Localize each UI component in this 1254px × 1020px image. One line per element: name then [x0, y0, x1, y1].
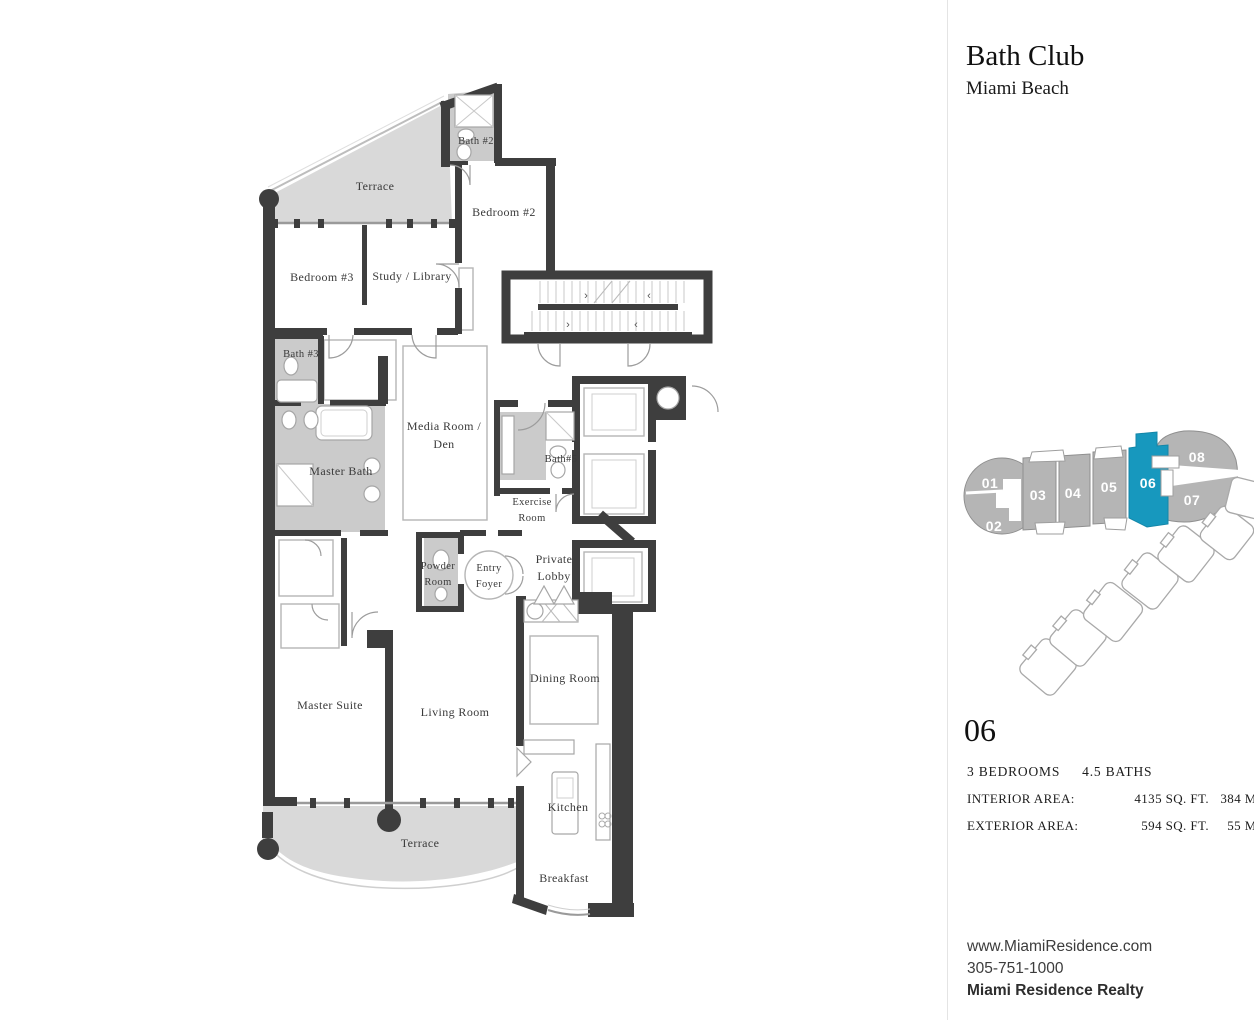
interior-area-row: INTERIOR AREA: 4135 SQ. FT. 384 M² — [967, 791, 1254, 807]
svg-text:Room: Room — [518, 513, 545, 524]
column — [377, 808, 401, 832]
elevator-shaft — [584, 454, 644, 514]
label-powder: Powder — [421, 561, 456, 572]
label-bath5: Bath#5 — [545, 454, 578, 465]
website-link[interactable]: www.MiamiResidence.com — [967, 936, 1152, 958]
label-dining-room: Dining Room — [530, 671, 600, 685]
label-master-bath: Master Bath — [309, 464, 372, 478]
panel-divider — [947, 0, 948, 1020]
label-bedroom2: Bedroom #2 — [472, 205, 536, 219]
label-breakfast: Breakfast — [539, 871, 589, 885]
label-terrace-bottom: Terrace — [401, 836, 440, 850]
terrace-top — [268, 96, 452, 224]
svg-text:Den: Den — [433, 437, 454, 451]
lobby-door — [554, 586, 574, 604]
stair-core: › ‹ › ‹ — [506, 275, 708, 339]
label-bath2: Bath #2 — [458, 136, 494, 147]
keyplan-label-01: 01 — [982, 475, 999, 491]
label-study: Study / Library — [372, 269, 451, 283]
phone-number: 305-751-1000 — [967, 958, 1152, 980]
label-entry-foyer: Entry — [476, 563, 502, 574]
building-subtitle: Miami Beach — [966, 78, 1069, 100]
svg-text:Lobby: Lobby — [537, 569, 570, 583]
interior-area-label: INTERIOR AREA: — [967, 791, 1119, 807]
floorplan-and-keyplan: › ‹ › ‹ — [0, 0, 1254, 1020]
label-master-suite: Master Suite — [297, 698, 363, 712]
column — [259, 189, 279, 209]
label-media-room: Media Room / — [407, 419, 481, 433]
exterior-area-m2: 55 M² — [1209, 818, 1254, 834]
svg-text:›: › — [584, 290, 588, 302]
company-name: Miami Residence Realty — [967, 980, 1152, 1002]
unit-number: 06 — [964, 712, 996, 749]
exterior-area-label: EXTERIOR AREA: — [967, 818, 1119, 834]
page: › ‹ › ‹ — [0, 0, 1254, 1020]
keyplan-label-05: 05 — [1101, 479, 1118, 495]
column — [257, 838, 279, 860]
svg-text:›: › — [566, 319, 570, 331]
svg-text:Foyer: Foyer — [476, 579, 503, 590]
entry-foyer-circle — [465, 551, 513, 599]
label-living-room: Living Room — [421, 705, 490, 719]
elevators — [572, 376, 686, 612]
svg-text:‹: ‹ — [647, 290, 651, 302]
keyplan-label-06: 06 — [1140, 475, 1157, 491]
keyplan: 01 02 03 04 05 06 07 08 — [964, 431, 1254, 698]
keyplan-label-03: 03 — [1030, 487, 1047, 503]
elevator-shaft — [584, 388, 644, 436]
exterior-area-sqft: 594 SQ. FT. — [1119, 818, 1209, 834]
lobby-door — [534, 586, 554, 604]
keyplan-label-02: 02 — [986, 518, 1003, 534]
keyplan-label-08: 08 — [1189, 449, 1206, 465]
bed-bath-line: 3 BEDROOMS4.5 BATHS — [967, 764, 1152, 780]
keyplan-label-07: 07 — [1184, 492, 1201, 508]
exterior-area-row: EXTERIOR AREA: 594 SQ. FT. 55 M² — [967, 818, 1254, 834]
floorplan: › ‹ › ‹ — [257, 84, 718, 917]
building-title: Bath Club — [966, 40, 1084, 73]
interior-area-sqft: 4135 SQ. FT. — [1119, 791, 1209, 807]
baths-count: 4.5 BATHS — [1082, 764, 1152, 779]
keyplan-label-04: 04 — [1065, 485, 1082, 501]
footer: www.MiamiResidence.com 305-751-1000 Miam… — [967, 936, 1152, 1002]
label-bath3: Bath #3 — [283, 349, 319, 360]
label-terrace-top: Terrace — [356, 179, 395, 193]
interior-area-m2: 384 M² — [1209, 791, 1254, 807]
label-private-lobby: Private — [536, 552, 573, 566]
label-kitchen: Kitchen — [548, 800, 589, 814]
label-bedroom3: Bedroom #3 — [290, 270, 354, 284]
svg-text:‹: ‹ — [634, 319, 638, 331]
svg-text:Room: Room — [424, 577, 451, 588]
bedrooms-count: 3 BEDROOMS — [967, 764, 1060, 779]
label-exercise: Exercise — [512, 497, 551, 508]
